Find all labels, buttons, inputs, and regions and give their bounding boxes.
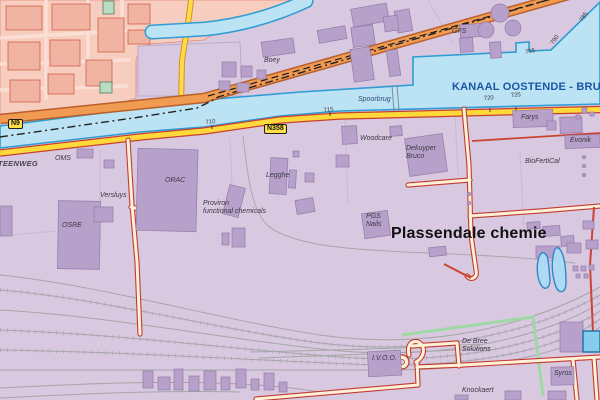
buildings-layer-shape <box>547 121 556 130</box>
canal-name-label: KANAAL OOSTENDE - BRUGGE <box>452 81 600 93</box>
local-roads-shape-shape <box>457 343 459 366</box>
buildings-layer-shape <box>222 62 236 77</box>
buildings-layer-shape <box>489 42 501 59</box>
storage-tank <box>478 22 494 38</box>
buildings-layer-shape <box>429 246 447 257</box>
buildings-layer-shape <box>342 126 358 145</box>
buildings-layer-shape <box>295 198 315 215</box>
buildings-layer-shape <box>94 207 113 222</box>
buildings-layer-shape <box>589 265 594 270</box>
urban-buildings-shape <box>52 4 90 30</box>
buildings-layer-shape <box>293 151 299 157</box>
buildings-layer-shape <box>351 25 376 48</box>
buildings-layer-shape <box>467 201 471 205</box>
buildings-layer-shape <box>77 149 93 158</box>
buildings-layer-shape <box>573 266 578 271</box>
urban-buildings-shape <box>8 42 40 70</box>
buildings-layer-shape <box>567 243 581 253</box>
buildings-layer-shape <box>576 274 580 278</box>
buildings-layer-shape <box>581 266 586 271</box>
buildings-layer-shape <box>582 155 586 159</box>
buildings-layer-shape <box>221 377 230 390</box>
road-badge-n9: N9 <box>8 119 23 129</box>
buildings-layer-shape <box>548 391 566 400</box>
buildings-layer-shape <box>383 15 399 32</box>
water-basin <box>583 331 600 352</box>
buildings-layer-shape <box>460 38 474 53</box>
buildings-layer-shape <box>505 391 521 400</box>
buildings-layer-shape <box>590 112 594 116</box>
buildings-layer-shape <box>336 155 349 167</box>
buildings-layer-shape <box>350 47 374 82</box>
buildings-layer-shape <box>264 373 274 390</box>
buildings-layer-shape <box>551 367 574 385</box>
buildings-layer-shape <box>527 222 540 230</box>
urban-buildings-shape <box>6 6 42 30</box>
storage-tank <box>505 20 521 36</box>
buildings-layer-shape <box>586 240 598 249</box>
buildings-layer-shape <box>241 66 252 77</box>
buildings-layer-shape <box>104 160 114 168</box>
buildings-layer-shape <box>236 369 246 388</box>
buildings-layer-shape <box>584 274 588 278</box>
buildings-layer-shape <box>219 81 230 90</box>
buildings-layer-shape <box>405 134 448 177</box>
ponds-shape <box>537 253 550 288</box>
buildings-layer-shape <box>279 382 287 392</box>
buildings-layer-shape <box>222 233 229 245</box>
buildings-layer-shape <box>269 158 288 195</box>
buildings-layer-shape <box>582 173 586 177</box>
map-canvas <box>0 0 600 400</box>
buildings-layer-shape <box>251 379 259 390</box>
urban-buildings-shape <box>128 4 150 24</box>
buildings-layer-shape <box>582 164 586 168</box>
urban-green-patches-shape <box>103 1 114 14</box>
buildings-layer-shape <box>204 371 216 390</box>
buildings-layer-shape <box>232 228 245 247</box>
urban-buildings-shape <box>48 74 74 94</box>
buildings-layer-shape <box>583 221 594 229</box>
map-viewport[interactable]: BoeyGFSSpoorbrugTEENWEGOMSORACVersluysOS… <box>0 0 600 400</box>
buildings-layer-shape <box>467 192 471 196</box>
buildings-layer-shape <box>305 173 314 182</box>
buildings-layer-shape <box>174 369 183 390</box>
buildings-layer-shape <box>136 148 198 232</box>
buildings-layer-shape <box>582 108 587 113</box>
urban-buildings-shape <box>98 18 124 52</box>
buildings-layer-shape <box>455 395 468 400</box>
buildings-layer-shape <box>390 126 403 137</box>
buildings-layer-shape <box>158 377 170 390</box>
buildings-layer-shape <box>367 350 401 377</box>
buildings-layer-shape <box>189 376 199 391</box>
buildings-layer-shape <box>576 115 580 119</box>
urban-buildings-shape <box>10 80 40 102</box>
buildings-layer-shape <box>237 83 249 92</box>
urban-green-patches-shape <box>100 82 112 93</box>
urban-buildings-shape <box>50 40 80 66</box>
road-badge-n358: N358 <box>264 124 287 134</box>
buildings-layer-shape <box>143 371 153 388</box>
buildings-layer-shape <box>361 210 390 238</box>
buildings-layer-shape <box>257 70 266 79</box>
buildings-layer-shape <box>289 170 297 188</box>
buildings-layer-shape <box>543 225 561 236</box>
buildings-layer-shape <box>0 206 12 236</box>
buildings-layer-shape <box>565 134 600 148</box>
buildings-layer-shape <box>560 322 583 352</box>
storage-tank <box>491 4 509 22</box>
